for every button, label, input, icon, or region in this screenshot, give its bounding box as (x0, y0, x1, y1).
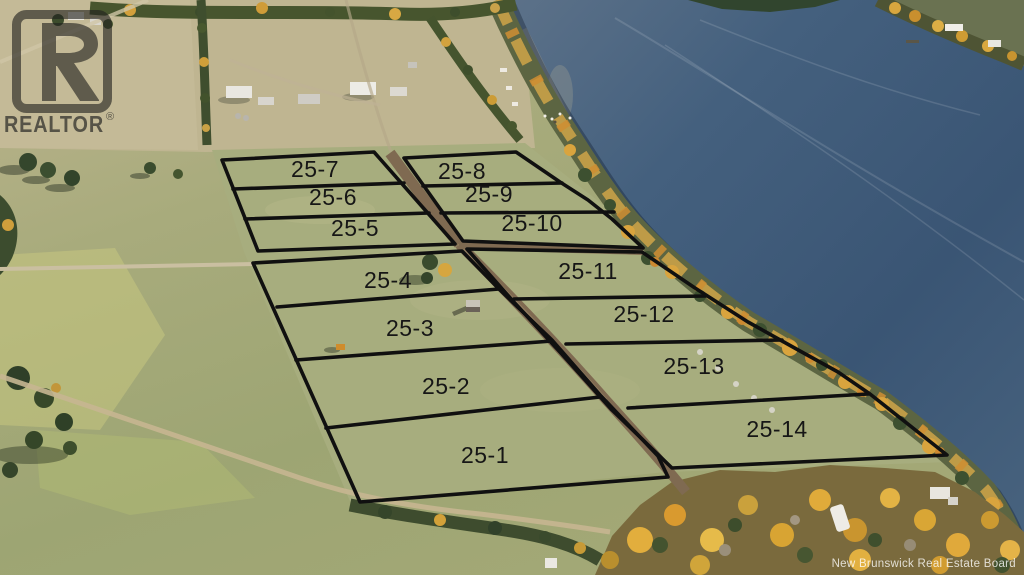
lot-label-25-7: 25-7 (291, 156, 339, 182)
lot-label-25-6: 25-6 (309, 184, 357, 210)
lot-label-25-3: 25-3 (386, 315, 434, 341)
aerial-photo: 25-1 25-2 25-3 25-4 25-5 25-6 25-7 25-8 … (0, 0, 1024, 575)
lot-label-25-13: 25-13 (663, 353, 724, 379)
lot-label-25-2: 25-2 (422, 373, 470, 399)
lot-label-25-1: 25-1 (461, 442, 509, 468)
lot-label-25-14: 25-14 (746, 416, 807, 442)
lot-label-25-10: 25-10 (501, 210, 562, 236)
lot-label-25-5: 25-5 (331, 215, 379, 241)
far-shore-house (988, 40, 1001, 47)
far-shore-house (945, 24, 963, 31)
realtor-wordmark: REALTOR (4, 111, 104, 137)
bottom-left-house (545, 558, 557, 568)
dock (906, 40, 919, 43)
registered-trademark-icon: ® (106, 111, 114, 123)
lot-label-25-11: 25-11 (558, 258, 618, 284)
board-watermark: New Brunswick Real Estate Board (832, 558, 1016, 570)
lot-label-25-12: 25-12 (613, 301, 674, 327)
lot-label-25-4: 25-4 (364, 267, 412, 293)
aerial-photo-listing: 25-1 25-2 25-3 25-4 25-5 25-6 25-7 25-8 … (0, 0, 1024, 575)
hedgerow (201, 0, 207, 145)
lot-label-25-9: 25-9 (465, 181, 513, 207)
